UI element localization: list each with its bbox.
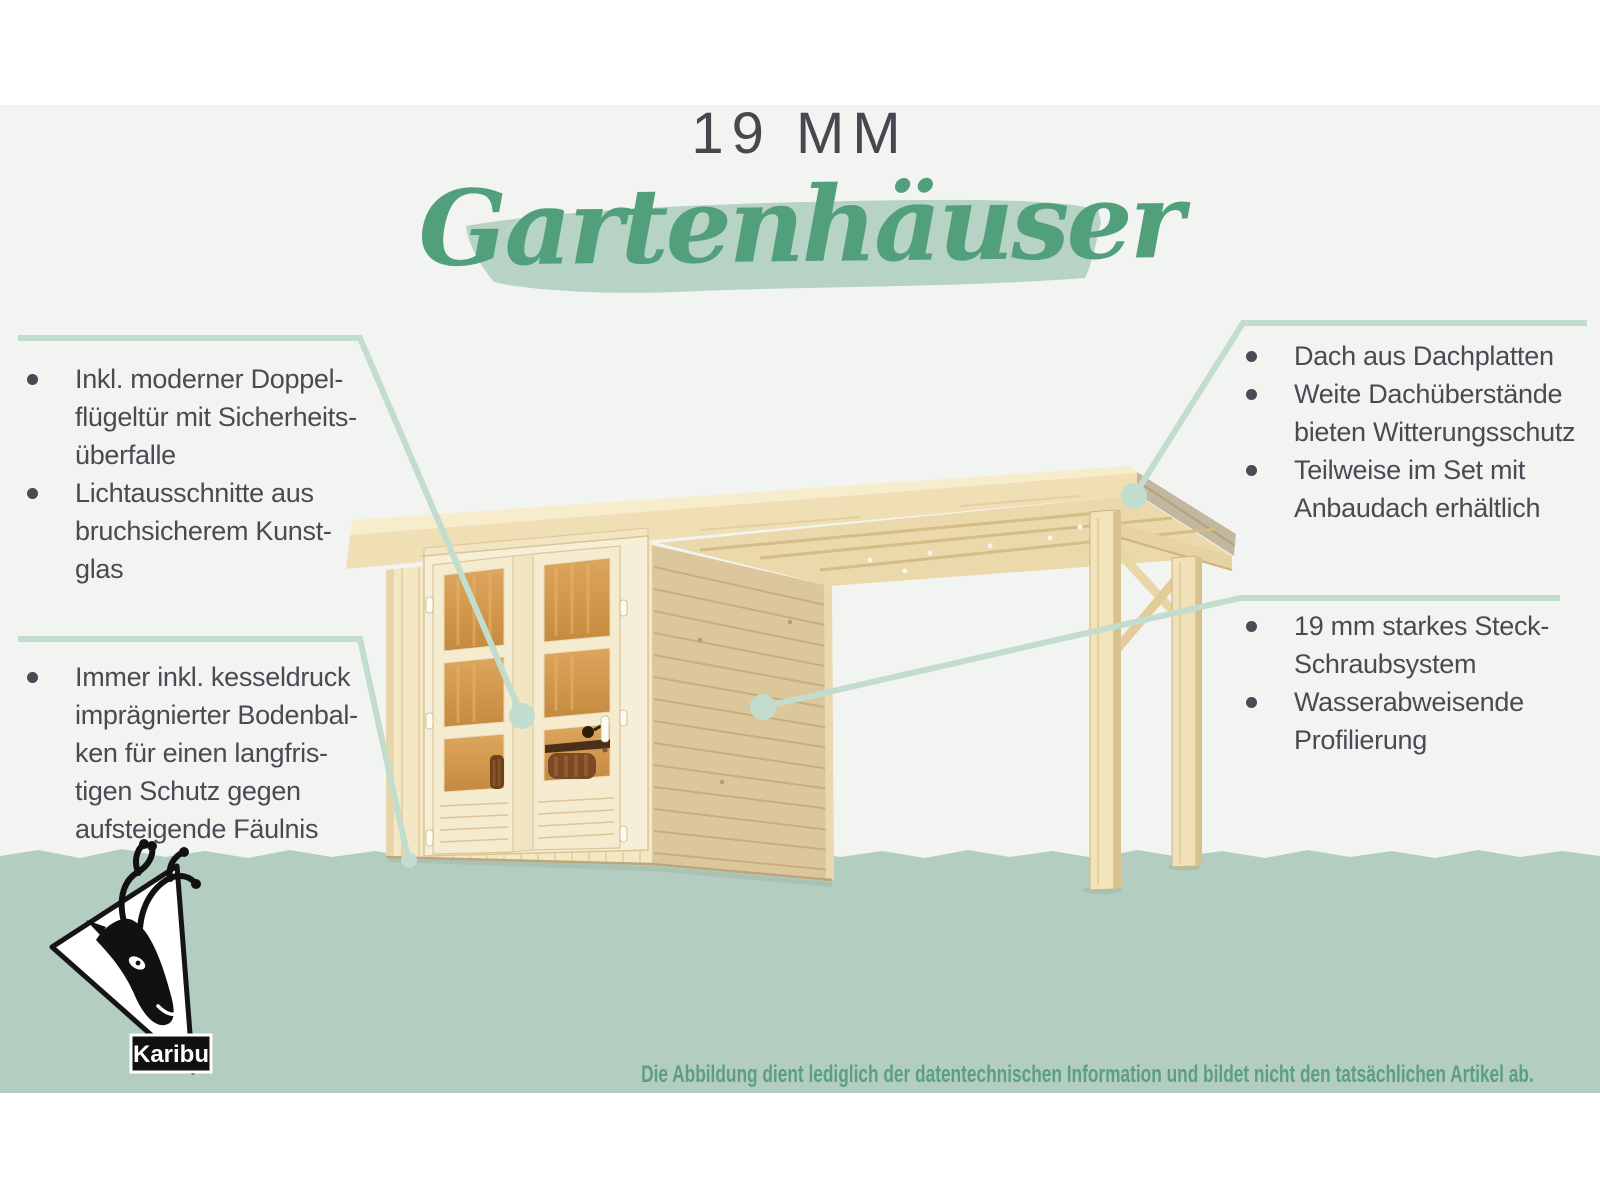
bullet-icon <box>1246 465 1257 476</box>
callout-dot-door <box>509 703 535 729</box>
feature-item: 19 mm starkes Steck- Schraubsystem <box>1246 607 1549 683</box>
bullet-icon <box>1246 351 1257 362</box>
feature-text: Lichtausschnitte aus bruchsicherem Kunst… <box>75 474 332 588</box>
door-handle <box>601 716 609 742</box>
bullet-icon <box>1246 621 1257 632</box>
feature-item: Teilweise im Set mit Anbaudach erhältlic… <box>1246 451 1575 527</box>
callout-tip-floor <box>401 852 417 868</box>
feature-list-roof: Dach aus Dachplatten Weite Dachüberständ… <box>1246 337 1575 527</box>
feature-text: Teilweise im Set mit Anbaudach erhältlic… <box>1294 451 1540 527</box>
feature-list-walls: 19 mm starkes Steck- Schraubsystem Wasse… <box>1246 607 1549 759</box>
bullet-icon <box>27 488 38 499</box>
infographic-page: Karibu 19 MM Gartenhäuser Inkl. moderner… <box>0 0 1600 1200</box>
door-keyhole <box>603 748 608 753</box>
disclaimer-text: Die Abbildung dient lediglich der datent… <box>641 1061 1534 1089</box>
feature-list-door: Inkl. moderner Doppel- flügeltür mit Sic… <box>27 360 357 588</box>
canopy-posts <box>1090 510 1202 890</box>
feature-item: Immer inkl. kesseldruck imprägnierter Bo… <box>27 658 358 848</box>
ground-band <box>0 849 1600 1093</box>
feature-text: Weite Dachüberstände bieten Witterungssc… <box>1294 375 1575 451</box>
feature-text: Immer inkl. kesseldruck imprägnierter Bo… <box>75 658 358 848</box>
shed-illustration <box>346 466 1236 894</box>
side-wall <box>652 545 834 880</box>
feature-text: Dach aus Dachplatten <box>1294 337 1554 375</box>
callout-dot-roof <box>1121 483 1147 509</box>
feature-item: Inkl. moderner Doppel- flügeltür mit Sic… <box>27 360 357 474</box>
feature-item: Dach aus Dachplatten <box>1246 337 1575 375</box>
feature-item: Wasserabweisende Profilierung <box>1246 683 1549 759</box>
bullet-icon <box>27 672 38 683</box>
feature-item: Lichtausschnitte aus bruchsicherem Kunst… <box>27 474 357 588</box>
bullet-icon <box>1246 697 1257 708</box>
feature-text: Wasserabweisende Profilierung <box>1294 683 1524 759</box>
bullet-icon <box>1246 389 1257 400</box>
feature-text: Inkl. moderner Doppel- flügeltür mit Sic… <box>75 360 357 474</box>
bullet-icon <box>27 374 38 385</box>
page-title: Gartenhäuser <box>0 155 1600 295</box>
feature-text: 19 mm starkes Steck- Schraubsystem <box>1294 607 1549 683</box>
feature-item: Weite Dachüberstände bieten Witterungssc… <box>1246 375 1575 451</box>
callout-dot-walls <box>750 694 776 720</box>
double-door <box>424 528 648 856</box>
logo-wordmark: Karibu <box>133 1041 209 1068</box>
feature-list-floor: Immer inkl. kesseldruck imprägnierter Bo… <box>27 658 358 848</box>
